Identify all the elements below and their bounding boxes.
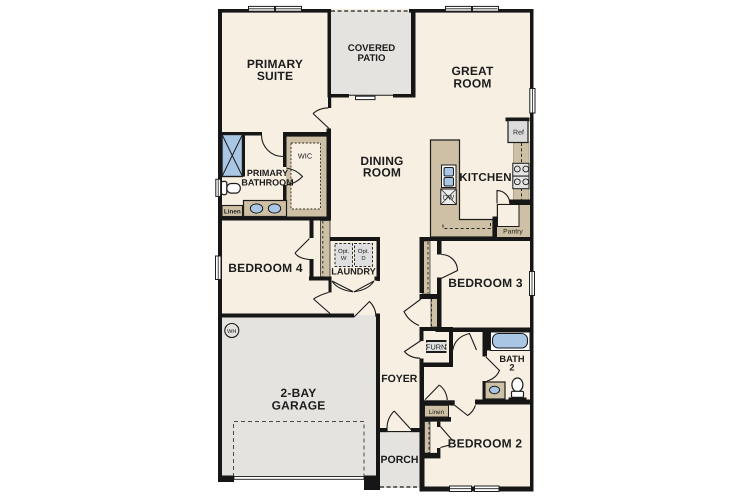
svg-text:BEDROOM 4: BEDROOM 4 xyxy=(228,261,303,275)
svg-text:W: W xyxy=(341,255,347,262)
svg-text:FURN: FURN xyxy=(426,343,446,352)
svg-text:BATHROOM: BATHROOM xyxy=(241,178,293,188)
svg-text:BEDROOM 2: BEDROOM 2 xyxy=(448,437,523,451)
svg-text:ROOM: ROOM xyxy=(453,77,491,91)
svg-text:WIC: WIC xyxy=(298,152,312,161)
svg-text:Opt.: Opt. xyxy=(358,248,369,255)
svg-text:DW: DW xyxy=(443,195,455,202)
svg-text:SUITE: SUITE xyxy=(257,69,293,83)
svg-text:KITCHEN: KITCHEN xyxy=(459,172,512,184)
svg-text:D: D xyxy=(361,255,365,262)
svg-text:Opt.: Opt. xyxy=(338,248,349,255)
svg-text:PATIO: PATIO xyxy=(358,53,386,64)
svg-text:Linen: Linen xyxy=(429,409,445,416)
svg-text:FOYER: FOYER xyxy=(381,373,418,385)
svg-text:Pantry: Pantry xyxy=(503,229,523,236)
svg-text:LAUNDRY: LAUNDRY xyxy=(331,267,376,277)
svg-text:Ref: Ref xyxy=(513,129,524,137)
svg-text:Linen: Linen xyxy=(224,209,241,216)
svg-text:BEDROOM 3: BEDROOM 3 xyxy=(448,276,523,290)
svg-text:2: 2 xyxy=(509,363,514,373)
svg-text:GARAGE: GARAGE xyxy=(272,399,326,413)
svg-text:ROOM: ROOM xyxy=(363,166,401,180)
svg-text:WH: WH xyxy=(227,329,236,335)
svg-text:PRIMARY: PRIMARY xyxy=(247,168,288,178)
svg-text:PORCH: PORCH xyxy=(381,454,419,466)
